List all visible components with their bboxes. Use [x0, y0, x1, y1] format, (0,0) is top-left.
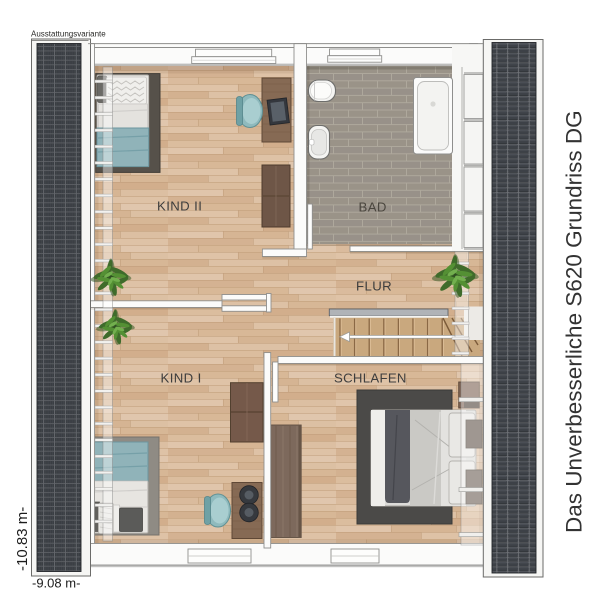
svg-text:-10.83 m-: -10.83 m-: [14, 507, 31, 571]
svg-text:KIND I: KIND I: [161, 371, 202, 386]
svg-text:Das Unverbesserliche S620 Grun: Das Unverbesserliche S620 Grundriss DG: [562, 110, 587, 533]
svg-text:SCHLAFEN: SCHLAFEN: [334, 371, 407, 386]
svg-text:Ausstattungsvariante: Ausstattungsvariante: [31, 30, 106, 39]
svg-text:BAD: BAD: [359, 200, 387, 215]
svg-text:KIND II: KIND II: [157, 199, 202, 214]
svg-text:-9.08 m-: -9.08 m-: [32, 576, 80, 591]
svg-text:FLUR: FLUR: [356, 279, 392, 294]
